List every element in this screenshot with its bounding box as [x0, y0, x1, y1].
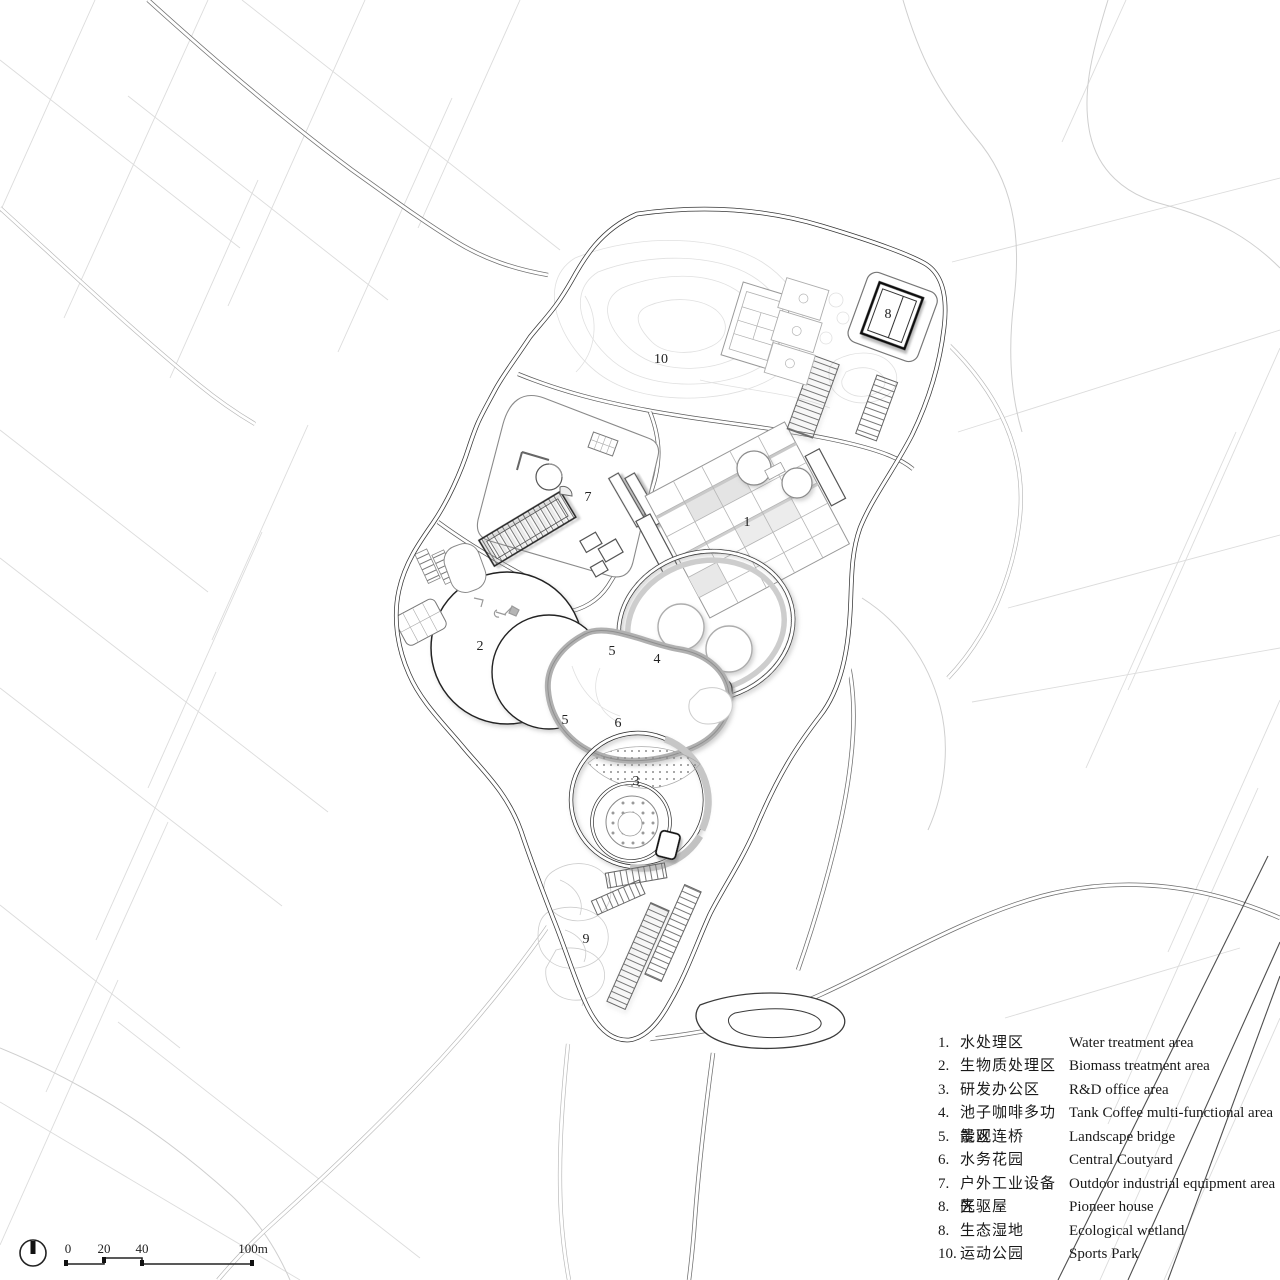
- legend-item-english: Outdoor industrial equipment area: [1069, 1173, 1275, 1196]
- digester-tank: [737, 451, 771, 485]
- legend-row: 5. 景观连桥 Landscape bridge: [938, 1126, 1268, 1149]
- legend-row: 4. 池子咖啡多功能区 Tank Coffee multi-functional…: [938, 1102, 1268, 1125]
- legend-item-chinese: 水处理区: [960, 1032, 1069, 1055]
- digester-tank: [782, 468, 812, 498]
- legend-row: 8. 先驱屋 Pioneer house: [938, 1196, 1268, 1219]
- north-arrow: [20, 1240, 46, 1266]
- legend-item-number: 4.: [938, 1102, 960, 1125]
- legend-item-number: 1.: [938, 1032, 960, 1055]
- legend-item-english: Ecological wetland: [1069, 1220, 1268, 1243]
- plan-label-1: 1: [744, 515, 751, 530]
- legend-item-number: 8.: [938, 1220, 960, 1243]
- scale-tick-20: 20: [98, 1241, 111, 1256]
- legend-row: 2. 生物质处理区 Biomass treatment area: [938, 1055, 1268, 1078]
- legend-row: 1. 水处理区 Water treatment area: [938, 1032, 1268, 1055]
- plan-label-5b: 5: [562, 713, 569, 728]
- legend-item-chinese: 水务花园: [960, 1149, 1069, 1172]
- legend-row: 7. 户外工业设备区 Outdoor industrial equipment …: [938, 1173, 1268, 1196]
- legend-item-english: Sports Park: [1069, 1243, 1268, 1266]
- scale-tick-100: 100m: [238, 1241, 268, 1256]
- plan-label-3: 3: [633, 774, 640, 789]
- legend-item-chinese: 运动公园: [960, 1243, 1069, 1266]
- legend-item-number: 8.: [938, 1196, 960, 1219]
- legend-item-chinese: 先驱屋: [960, 1196, 1069, 1219]
- legend-item-english: Landscape bridge: [1069, 1126, 1268, 1149]
- legend-item-chinese: 研发办公区: [960, 1079, 1069, 1102]
- legend-item-number: 10.: [938, 1243, 960, 1266]
- plan-label-5a: 5: [609, 644, 616, 659]
- legend-item-english: Central Coutyard: [1069, 1149, 1268, 1172]
- plan-label-6: 6: [615, 716, 622, 731]
- legend-item-english: Pioneer house: [1069, 1196, 1268, 1219]
- legend-item-number: 3.: [938, 1079, 960, 1102]
- legend-item-chinese: 生物质处理区: [960, 1055, 1069, 1078]
- legend-item-number: 5.: [938, 1126, 960, 1149]
- legend-item-number: 7.: [938, 1173, 960, 1196]
- legend-item-english: Water treatment area: [1069, 1032, 1268, 1055]
- legend: 1. 水处理区 Water treatment area 2. 生物质处理区 B…: [938, 1032, 1268, 1266]
- legend-item-chinese: 景观连桥: [960, 1126, 1069, 1149]
- plan-label-4: 4: [654, 652, 661, 667]
- plan-label-8: 8: [885, 307, 892, 322]
- legend-item-chinese: 生态湿地: [960, 1220, 1069, 1243]
- legend-item-number: 2.: [938, 1055, 960, 1078]
- site-plan-page: 1 2 3 4 5 5 6 7 8 9 10 0 20 40 100m 1. 水…: [0, 0, 1280, 1280]
- scale-bar: 0 20 40 100m: [64, 1241, 268, 1266]
- plan-label-9: 9: [583, 932, 590, 947]
- legend-item-chinese: 户外工业设备区: [960, 1173, 1069, 1196]
- plan-label-2: 2: [477, 639, 484, 654]
- legend-item-english: R&D office area: [1069, 1079, 1268, 1102]
- legend-row: 6. 水务花园 Central Coutyard: [938, 1149, 1268, 1172]
- legend-row: 10. 运动公园 Sports Park: [938, 1243, 1268, 1266]
- plan-label-10: 10: [654, 352, 668, 367]
- legend-row: 8. 生态湿地 Ecological wetland: [938, 1220, 1268, 1243]
- legend-row: 3. 研发办公区 R&D office area: [938, 1079, 1268, 1102]
- legend-item-english: Tank Coffee multi-functional area: [1069, 1102, 1273, 1125]
- legend-item-chinese: 池子咖啡多功能区: [960, 1102, 1069, 1125]
- legend-item-english: Biomass treatment area: [1069, 1055, 1268, 1078]
- legend-item-number: 6.: [938, 1149, 960, 1172]
- scale-tick-40: 40: [136, 1241, 149, 1256]
- road-junction-island: [696, 993, 845, 1048]
- plan-label-7: 7: [585, 490, 592, 505]
- scale-tick-0: 0: [65, 1241, 72, 1256]
